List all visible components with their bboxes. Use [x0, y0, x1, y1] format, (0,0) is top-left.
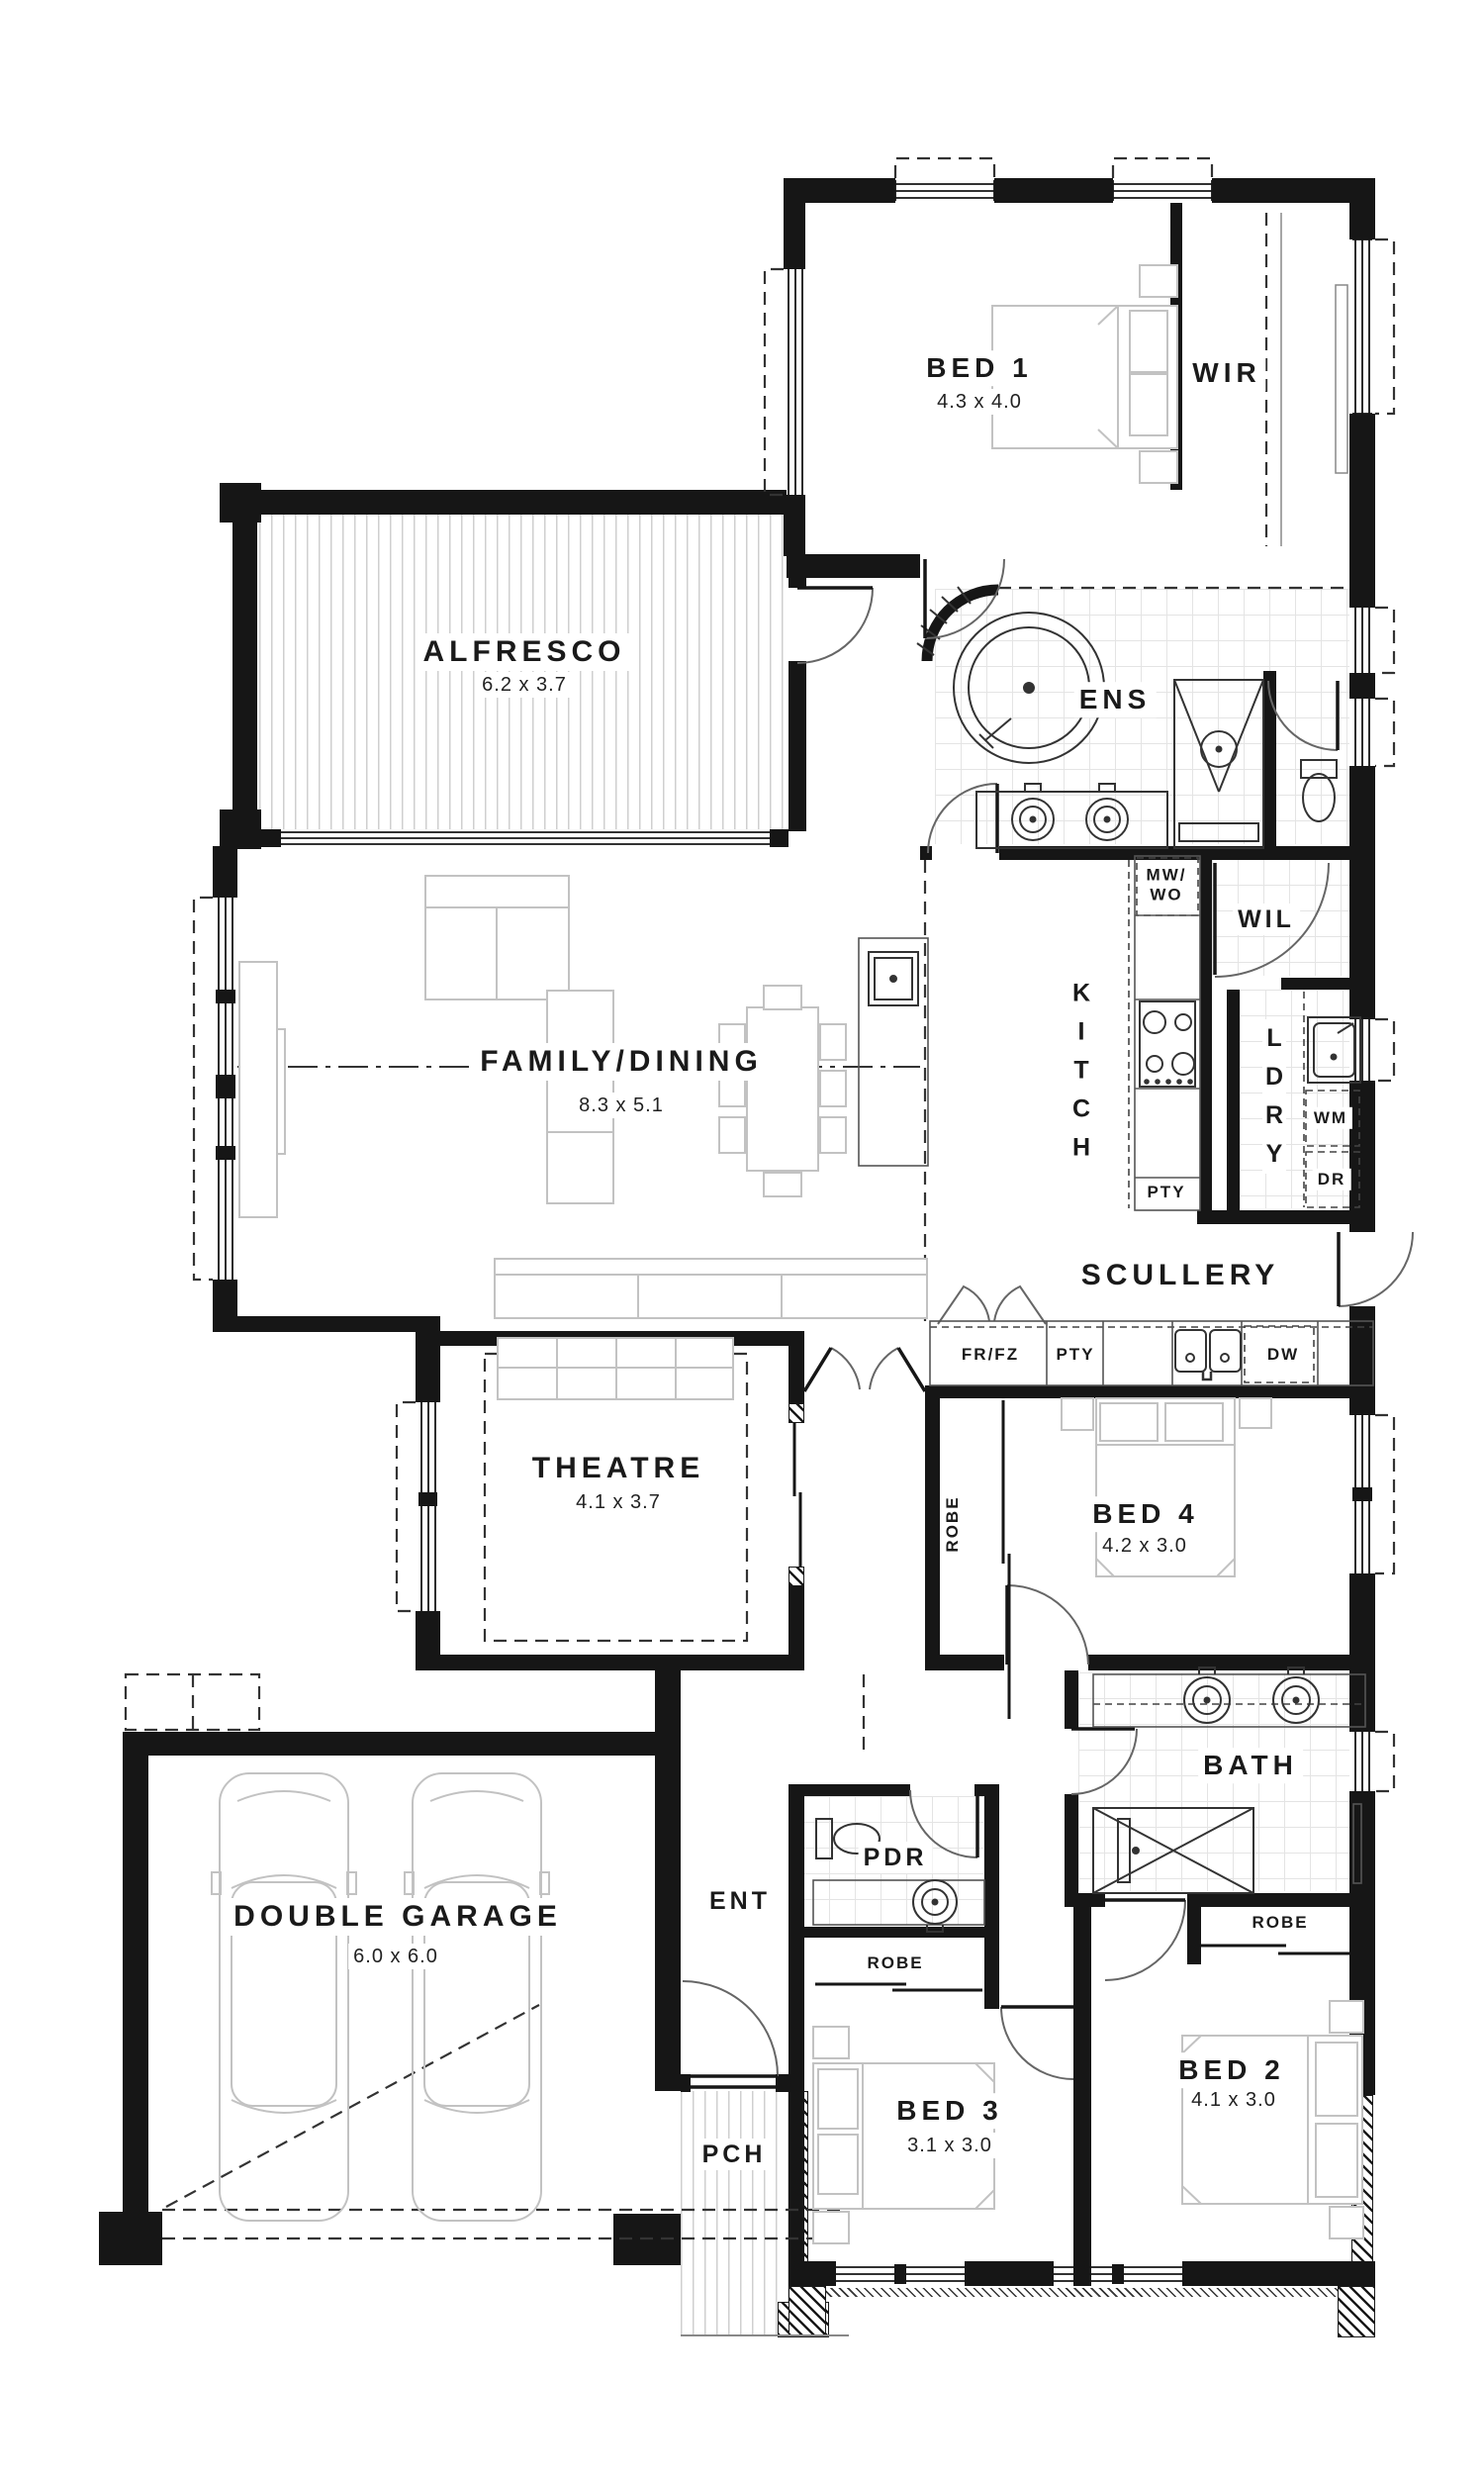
walls-layer: [99, 178, 1375, 2286]
label-scullery: SCULLERY: [1076, 1257, 1285, 1294]
label-garage: DOUBLE GARAGE: [229, 1898, 567, 1936]
label-laundry: L D R Y: [1262, 1019, 1286, 1174]
label-bed3: BED 3: [891, 2093, 1007, 2129]
label-bed1: BED 1: [921, 350, 1037, 386]
dims-family: 8.3 x 5.1: [574, 1093, 669, 1118]
wir-shelving: [1281, 213, 1347, 546]
car-right-icon: [405, 1773, 549, 2221]
label-robe-bed2: ROBE: [1247, 1912, 1313, 1934]
label-family: FAMILY/DINING: [475, 1043, 768, 1081]
label-wir: WIR: [1187, 355, 1265, 391]
dims-bed2: 4.1 x 3.0: [1186, 2087, 1281, 2113]
kitchen-bench: [1135, 856, 1200, 1210]
dims-bed4: 4.2 x 3.0: [1097, 1533, 1192, 1559]
dims-bed1: 4.3 x 4.0: [932, 389, 1027, 415]
label-robe-bed4: ROBE: [942, 1490, 964, 1557]
label-kitchen: K I T C H: [1069, 975, 1093, 1168]
label-entry: ENT: [704, 1885, 776, 1917]
label-pty-kitchen: PTY: [1142, 1182, 1190, 1203]
label-fr-fz: FR/FZ: [957, 1344, 1024, 1366]
pdr-fixtures: [813, 1819, 984, 1932]
label-powder: PDR: [859, 1842, 933, 1873]
ens-curved-wall: [917, 587, 998, 661]
ens-shower: [1174, 680, 1263, 848]
wc-toilet-icon: [1301, 760, 1337, 821]
label-mw-wo: MW/ WO: [1142, 865, 1192, 907]
floor-plan: BED 1 4.3 x 4.0 WIR ALFRESCO 6.2 x 3.7 E…: [0, 0, 1484, 2474]
dims-theatre: 4.1 x 3.7: [571, 1489, 666, 1515]
label-alfresco: ALFRESCO: [418, 633, 631, 671]
dims-alfresco: 6.2 x 3.7: [477, 672, 572, 698]
theatre-sofa: [498, 1338, 733, 1399]
dims-bed3: 3.1 x 3.0: [902, 2133, 997, 2158]
label-bed2: BED 2: [1173, 2052, 1289, 2088]
label-pty-scullery: PTY: [1051, 1344, 1099, 1366]
kitchen-island: [859, 938, 928, 1166]
label-bath: BATH: [1198, 1748, 1303, 1783]
laundry-trough: [1308, 1017, 1360, 1083]
label-porch: PCH: [697, 2139, 772, 2170]
label-bed4: BED 4: [1087, 1496, 1203, 1532]
label-robe-bed3: ROBE: [862, 1952, 928, 1974]
car-left-icon: [212, 1773, 356, 2221]
label-dw: DW: [1262, 1344, 1304, 1366]
bath-vanity: [1093, 1667, 1365, 1727]
label-wil: WIL: [1233, 904, 1300, 935]
label-wm: WM: [1309, 1107, 1352, 1129]
label-dr: DR: [1313, 1169, 1351, 1190]
bath-shower: [1093, 1804, 1361, 1893]
label-theatre: THEATRE: [527, 1450, 709, 1487]
dims-garage: 6.0 x 6.0: [348, 1944, 443, 1969]
label-ens: ENS: [1074, 682, 1157, 717]
bed2-furniture: [1182, 2001, 1363, 2238]
ens-vanity: [976, 784, 1167, 848]
